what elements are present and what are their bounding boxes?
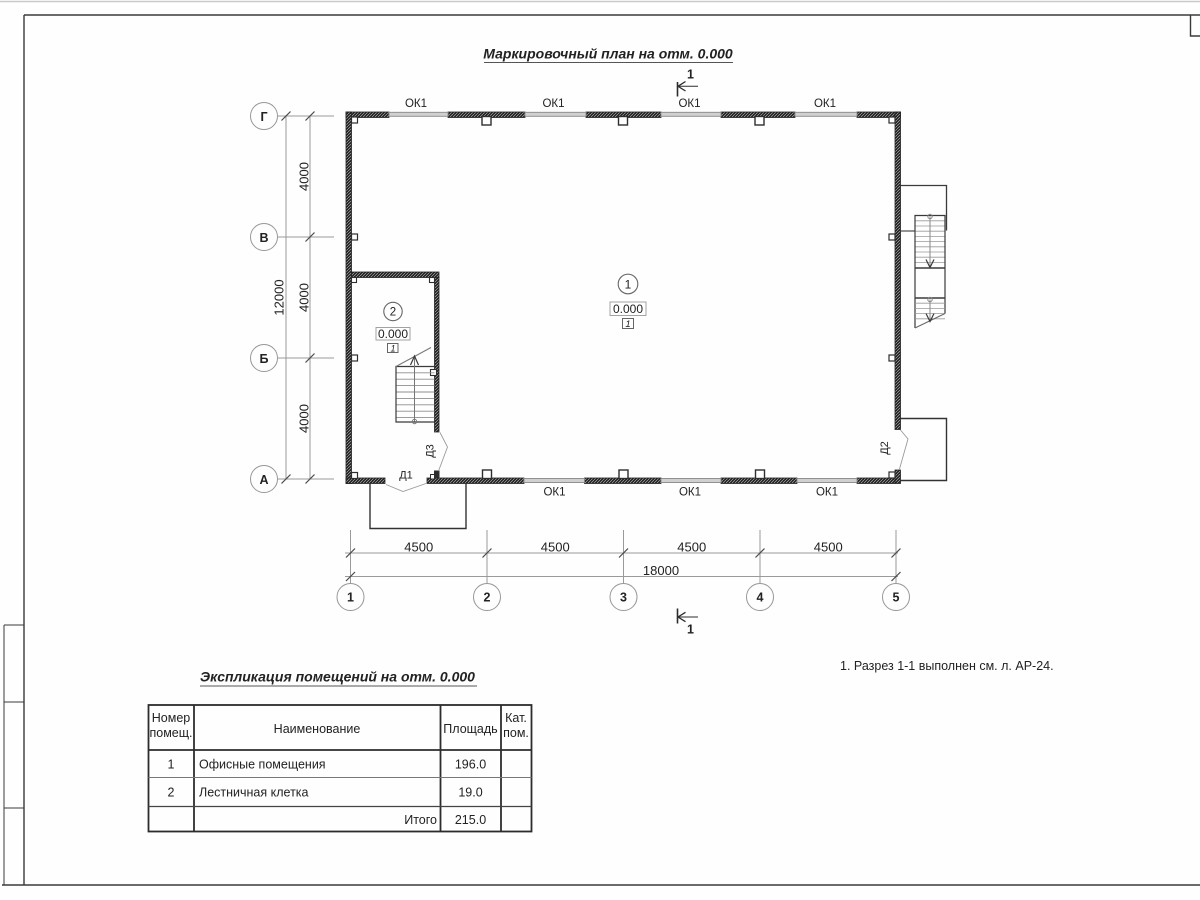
svg-text:215.0: 215.0 <box>455 813 486 827</box>
svg-text:12000: 12000 <box>272 279 287 315</box>
svg-text:1: 1 <box>390 343 395 353</box>
svg-text:ОК1: ОК1 <box>543 487 565 499</box>
svg-text:1. Разрез 1-1 выполнен см. л.: 1. Разрез 1-1 выполнен см. л. АР-24. <box>840 659 1054 673</box>
svg-text:1: 1 <box>625 278 632 292</box>
svg-text:1: 1 <box>687 68 694 82</box>
svg-text:4500: 4500 <box>814 540 843 555</box>
svg-text:4000: 4000 <box>297 404 312 433</box>
svg-text:2: 2 <box>484 591 491 605</box>
svg-text:4500: 4500 <box>404 540 433 555</box>
svg-text:ОК1: ОК1 <box>405 98 427 110</box>
svg-text:Кат.: Кат. <box>505 711 527 725</box>
svg-text:В: В <box>259 231 268 245</box>
svg-text:1: 1 <box>625 319 630 330</box>
svg-text:Лестничная клетка: Лестничная клетка <box>199 786 309 800</box>
svg-text:ОК1: ОК1 <box>814 98 836 110</box>
svg-text:1: 1 <box>687 623 694 637</box>
svg-text:Офисные помещения: Офисные помещения <box>199 758 326 772</box>
svg-text:0.000: 0.000 <box>613 302 643 316</box>
svg-text:1: 1 <box>347 591 354 605</box>
svg-text:ОК1: ОК1 <box>678 98 700 110</box>
svg-text:4500: 4500 <box>677 540 706 555</box>
svg-text:3: 3 <box>620 591 627 605</box>
svg-text:Д3: Д3 <box>425 444 437 458</box>
svg-text:А: А <box>259 473 268 487</box>
svg-text:196.0: 196.0 <box>455 758 486 772</box>
svg-text:пом.: пом. <box>503 726 529 740</box>
svg-text:Наименование: Наименование <box>274 722 361 736</box>
svg-text:Д2: Д2 <box>879 441 891 455</box>
svg-text:Площадь: Площадь <box>443 722 497 736</box>
svg-text:помещ.: помещ. <box>149 726 192 740</box>
svg-text:ОК1: ОК1 <box>679 487 701 499</box>
svg-text:5: 5 <box>893 591 900 605</box>
svg-text:1: 1 <box>168 758 175 772</box>
svg-text:Б: Б <box>260 352 269 366</box>
svg-text:Г: Г <box>260 110 267 124</box>
svg-text:Номер: Номер <box>152 711 191 725</box>
svg-text:Д1: Д1 <box>399 470 413 482</box>
svg-text:ОК1: ОК1 <box>816 487 838 499</box>
svg-text:4: 4 <box>757 591 764 605</box>
svg-text:4000: 4000 <box>297 283 312 312</box>
svg-text:2: 2 <box>168 786 175 800</box>
svg-text:ОК1: ОК1 <box>542 98 564 110</box>
svg-text:18000: 18000 <box>643 563 679 578</box>
svg-text:Маркировочный план на отм. 0.0: Маркировочный план на отм. 0.000 <box>483 46 733 62</box>
svg-text:4000: 4000 <box>297 162 312 191</box>
svg-text:2: 2 <box>390 307 396 319</box>
svg-text:0.000: 0.000 <box>378 327 408 341</box>
svg-text:Итого: Итого <box>404 813 437 827</box>
svg-text:4500: 4500 <box>541 540 570 555</box>
svg-text:Экспликация помещений на отм.: Экспликация помещений на отм. 0.000 <box>200 669 475 685</box>
svg-text:19.0: 19.0 <box>458 786 482 800</box>
